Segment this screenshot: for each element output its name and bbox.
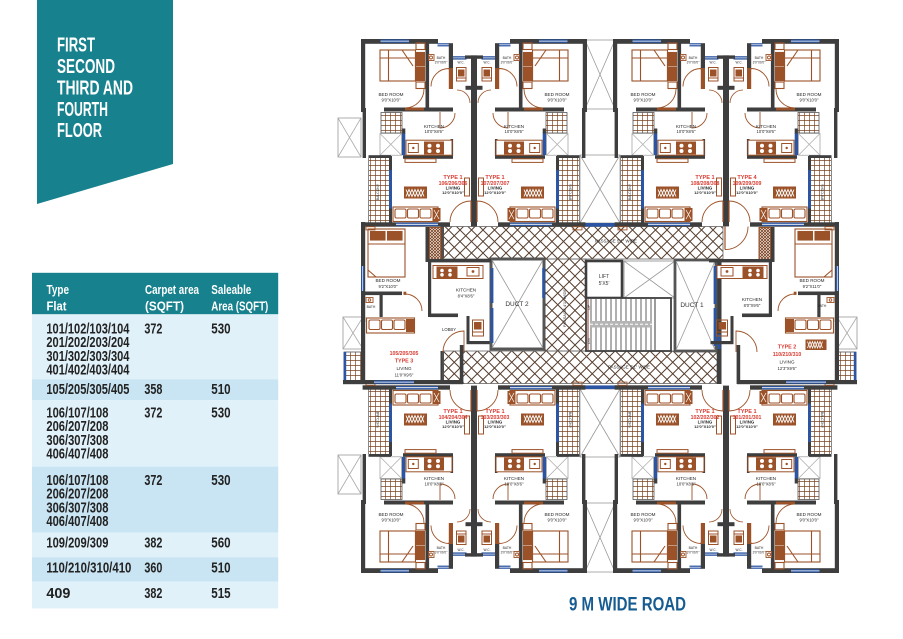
svg-text:KITCHEN: KITCHEN	[756, 476, 776, 481]
svg-text:W.C.: W.C.	[710, 548, 717, 552]
svg-text:Type: Type	[47, 282, 70, 297]
svg-text:Flat: Flat	[47, 299, 68, 314]
svg-text:10'0"X8'6": 10'0"X8'6"	[676, 482, 696, 487]
svg-text:BATH: BATH	[503, 56, 512, 60]
svg-text:9'0"X10'0": 9'0"X10'0"	[799, 518, 819, 523]
svg-text:12'0"X10'0": 12'0"X10'0"	[484, 190, 506, 195]
svg-text:9'2"X10'0": 9'2"X10'0"	[378, 284, 398, 289]
svg-text:10'0"X8'6": 10'0"X8'6"	[424, 482, 444, 487]
svg-text:105/205/305/405: 105/205/305/405	[46, 381, 129, 398]
svg-text:10'0"X8'6": 10'0"X8'6"	[504, 129, 524, 134]
svg-text:BALCONY: BALCONY	[628, 183, 632, 200]
svg-text:BALCONY: BALCONY	[628, 412, 632, 429]
svg-text:3'0"X6'0": 3'0"X6'0"	[753, 551, 766, 555]
svg-text:12'0"X10'0": 12'0"X10'0"	[736, 190, 758, 195]
svg-text:9'0"X10'0": 9'0"X10'0"	[381, 518, 401, 523]
svg-text:W.C.: W.C.	[710, 61, 717, 65]
svg-text:10'0"X8'6": 10'0"X8'6"	[756, 482, 776, 487]
svg-text:BATH: BATH	[755, 546, 764, 550]
svg-text:W.C.: W.C.	[458, 61, 465, 65]
svg-text:BED ROOM: BED ROOM	[378, 512, 403, 517]
svg-text:9 M WIDE ROAD: 9 M WIDE ROAD	[569, 594, 686, 616]
svg-text:BALCONY: BALCONY	[820, 412, 824, 429]
svg-text:BED ROOM: BED ROOM	[796, 512, 821, 517]
svg-text:W.C.: W.C.	[736, 61, 743, 65]
svg-text:UP: UP	[586, 304, 591, 310]
svg-text:BALCONY: BALCONY	[568, 183, 572, 200]
svg-text:SECOND: SECOND	[57, 56, 115, 78]
svg-text:372: 372	[144, 404, 162, 421]
svg-text:BALCONY: BALCONY	[820, 183, 824, 200]
svg-text:LOBBY: LOBBY	[442, 327, 456, 332]
svg-text:W.C.: W.C.	[458, 548, 465, 552]
svg-text:KITCHEN: KITCHEN	[742, 297, 762, 302]
svg-text:110/210/310/410: 110/210/310/410	[46, 560, 131, 577]
svg-text:3'0"X6'0": 3'0"X6'0"	[501, 61, 514, 65]
svg-text:12'0"X10'0": 12'0"X10'0"	[694, 424, 716, 429]
svg-text:9'0"X10'0": 9'0"X10'0"	[633, 98, 653, 103]
svg-text:515: 515	[211, 585, 230, 602]
svg-text:372: 372	[144, 472, 162, 489]
svg-text:3'0"X6'0": 3'0"X6'0"	[687, 61, 700, 65]
svg-text:BATH: BATH	[367, 305, 376, 309]
svg-text:382: 382	[144, 534, 162, 551]
svg-text:510: 510	[211, 381, 230, 398]
svg-text:3'0"X6'0": 3'0"X6'0"	[687, 551, 700, 555]
svg-text:12'0"X10'0": 12'0"X10'0"	[736, 424, 758, 429]
svg-text:12'0"X10'0": 12'0"X10'0"	[442, 190, 464, 195]
svg-text:BED ROOM: BED ROOM	[375, 278, 400, 283]
svg-text:BED ROOM: BED ROOM	[630, 512, 655, 517]
svg-text:BED ROOM: BED ROOM	[544, 512, 569, 517]
svg-text:530: 530	[211, 404, 230, 421]
svg-text:3'0"X6'0": 3'0"X6'0"	[435, 551, 448, 555]
svg-text:406/407/408: 406/407/408	[46, 513, 108, 530]
svg-text:KITCHEN: KITCHEN	[676, 476, 696, 481]
svg-text:105/205/305: 105/205/305	[390, 351, 419, 357]
svg-text:BATH: BATH	[503, 546, 512, 550]
svg-text:BATH: BATH	[818, 304, 827, 308]
svg-text:9'0"X10'0": 9'0"X10'0"	[633, 518, 653, 523]
svg-text:W.C.: W.C.	[484, 61, 491, 65]
svg-text:12'3"X9'6": 12'3"X9'6"	[777, 366, 797, 371]
svg-text:TYPE 3: TYPE 3	[395, 359, 414, 365]
svg-text:530: 530	[211, 320, 230, 337]
svg-text:110/210/310: 110/210/310	[773, 352, 802, 358]
svg-text:DUCT 1: DUCT 1	[680, 302, 704, 309]
svg-text:5'X5': 5'X5'	[599, 281, 610, 287]
svg-text:3'0"X6'0": 3'0"X6'0"	[753, 61, 766, 65]
svg-text:BED ROOM: BED ROOM	[630, 92, 655, 97]
svg-text:(SQFT): (SQFT)	[145, 299, 184, 314]
svg-text:W.C.: W.C.	[736, 548, 743, 552]
svg-text:TYPE 2: TYPE 2	[778, 345, 797, 351]
svg-text:8'4"X8'6": 8'4"X8'6"	[458, 294, 475, 299]
svg-text:BALCONY: BALCONY	[376, 183, 380, 200]
svg-text:BATH: BATH	[689, 546, 698, 550]
svg-text:510: 510	[211, 560, 230, 577]
svg-text:KITCHEN: KITCHEN	[424, 476, 444, 481]
svg-text:10'0"X8'6": 10'0"X8'6"	[504, 482, 524, 487]
svg-text:FOURTH: FOURTH	[57, 99, 108, 121]
svg-text:109/209/309: 109/209/309	[46, 534, 108, 551]
svg-text:12'0"X10'0": 12'0"X10'0"	[484, 424, 506, 429]
svg-text:358: 358	[144, 381, 162, 398]
svg-text:8'0"X9'6": 8'0"X9'6"	[744, 303, 761, 308]
svg-text:9'2"X11'0": 9'2"X11'0"	[803, 284, 822, 289]
svg-text:409: 409	[46, 585, 70, 602]
svg-text:BED ROOM: BED ROOM	[378, 92, 403, 97]
svg-text:DUCT 2: DUCT 2	[505, 301, 529, 308]
svg-text:FLOOR: FLOOR	[57, 120, 102, 142]
svg-text:PASSAGE 5'1" WIDE: PASSAGE 5'1" WIDE	[608, 365, 650, 370]
svg-text:406/407/408: 406/407/408	[46, 446, 108, 463]
svg-text:10'0"X8'6": 10'0"X8'6"	[676, 129, 696, 134]
svg-text:Carpet area: Carpet area	[145, 282, 200, 297]
svg-text:KITCHEN: KITCHEN	[504, 476, 524, 481]
svg-text:BATH: BATH	[689, 56, 698, 60]
svg-text:530: 530	[211, 472, 230, 489]
svg-text:PASSAGE 4'1" WIDE: PASSAGE 4'1" WIDE	[562, 289, 567, 327]
svg-text:PASSAGE 5'1" WIDE: PASSAGE 5'1" WIDE	[595, 239, 637, 244]
svg-text:KITCHEN: KITCHEN	[456, 288, 476, 293]
svg-text:BED ROOM: BED ROOM	[799, 278, 824, 283]
svg-text:3'0"X6'0": 3'0"X6'0"	[435, 61, 448, 65]
svg-text:LIVING: LIVING	[396, 366, 411, 371]
svg-text:BALCONY: BALCONY	[376, 412, 380, 429]
svg-text:BATH: BATH	[437, 546, 446, 550]
svg-text:401/402/403/404: 401/402/403/404	[46, 362, 129, 379]
svg-text:11'0"X9'6": 11'0"X9'6"	[395, 373, 414, 378]
svg-text:12'0"X10'0": 12'0"X10'0"	[694, 190, 716, 195]
svg-text:THIRD AND: THIRD AND	[57, 77, 133, 99]
svg-text:3'0"X6'0": 3'0"X6'0"	[501, 551, 514, 555]
svg-text:BED ROOM: BED ROOM	[796, 92, 821, 97]
svg-text:9'0"X10'0": 9'0"X10'0"	[547, 98, 567, 103]
svg-text:LIVING: LIVING	[779, 360, 794, 365]
svg-text:12'0"X10'0": 12'0"X10'0"	[442, 424, 464, 429]
svg-text:9'0"X10'0": 9'0"X10'0"	[799, 98, 819, 103]
svg-text:W.C.: W.C.	[484, 548, 491, 552]
svg-text:372: 372	[144, 320, 162, 337]
svg-text:DN: DN	[586, 338, 591, 344]
svg-text:Saleable: Saleable	[211, 282, 251, 297]
svg-text:10'0"X8'6": 10'0"X8'6"	[424, 129, 444, 134]
svg-text:FIRST: FIRST	[57, 35, 95, 57]
svg-text:560: 560	[211, 534, 230, 551]
svg-text:BED ROOM: BED ROOM	[544, 92, 569, 97]
svg-text:BATH: BATH	[755, 56, 764, 60]
svg-text:10'0"X8'6": 10'0"X8'6"	[756, 129, 776, 134]
svg-text:360: 360	[144, 560, 162, 577]
svg-text:BALCONY: BALCONY	[568, 412, 572, 429]
svg-text:Area (SQFT): Area (SQFT)	[211, 299, 268, 314]
svg-text:382: 382	[144, 585, 162, 602]
svg-text:BATH: BATH	[437, 56, 446, 60]
svg-text:9'0"X10'0": 9'0"X10'0"	[381, 98, 401, 103]
svg-text:LIFT: LIFT	[599, 274, 609, 280]
svg-text:9'0"X10'0": 9'0"X10'0"	[547, 518, 567, 523]
